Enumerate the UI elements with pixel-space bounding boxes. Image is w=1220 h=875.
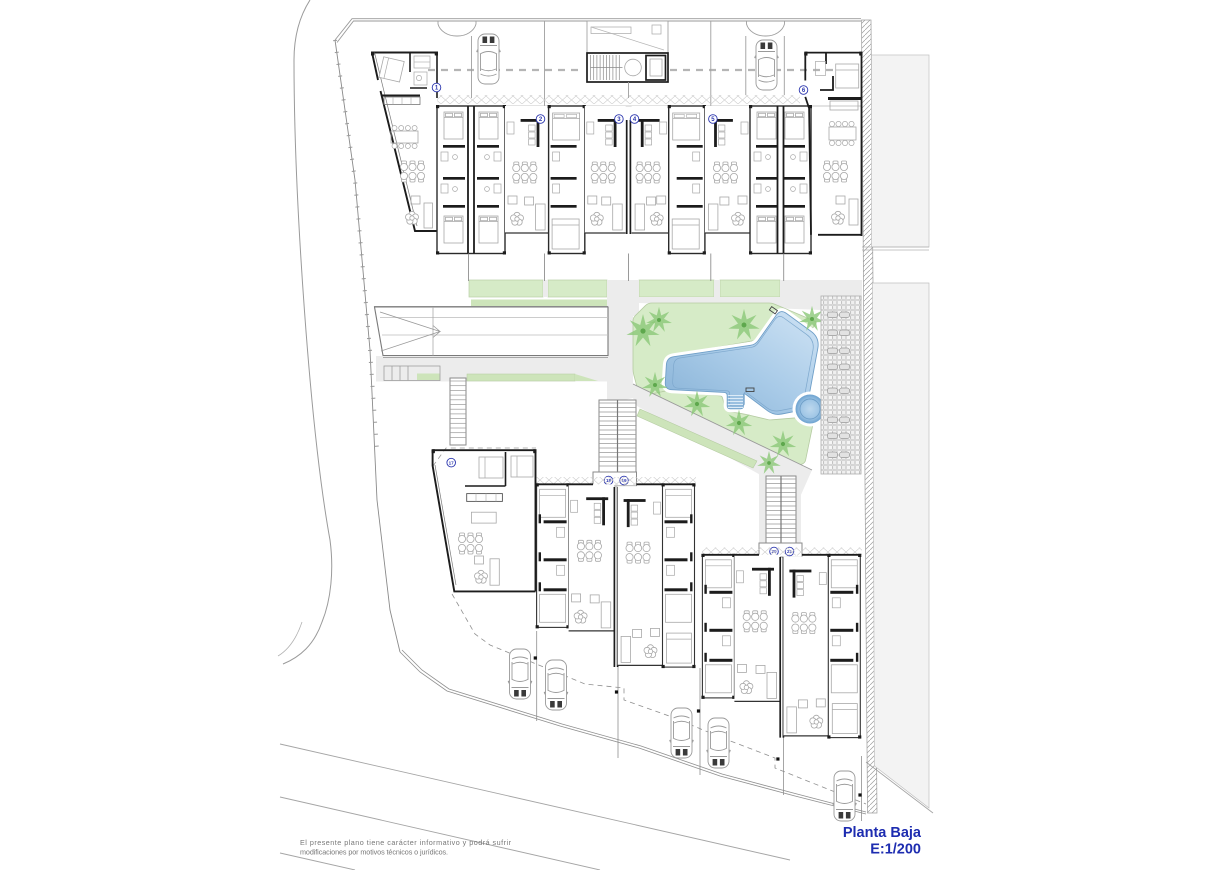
svg-text:17: 17 [449, 460, 455, 465]
svg-text:E:1/200: E:1/200 [870, 842, 921, 858]
svg-text:modificaciones por motivos téc: modificaciones por motivos técnicos o ju… [300, 848, 448, 857]
svg-text:Planta Baja: Planta Baja [843, 825, 922, 841]
svg-text:El presente plano tiene caráct: El presente plano tiene carácter informa… [300, 838, 512, 847]
